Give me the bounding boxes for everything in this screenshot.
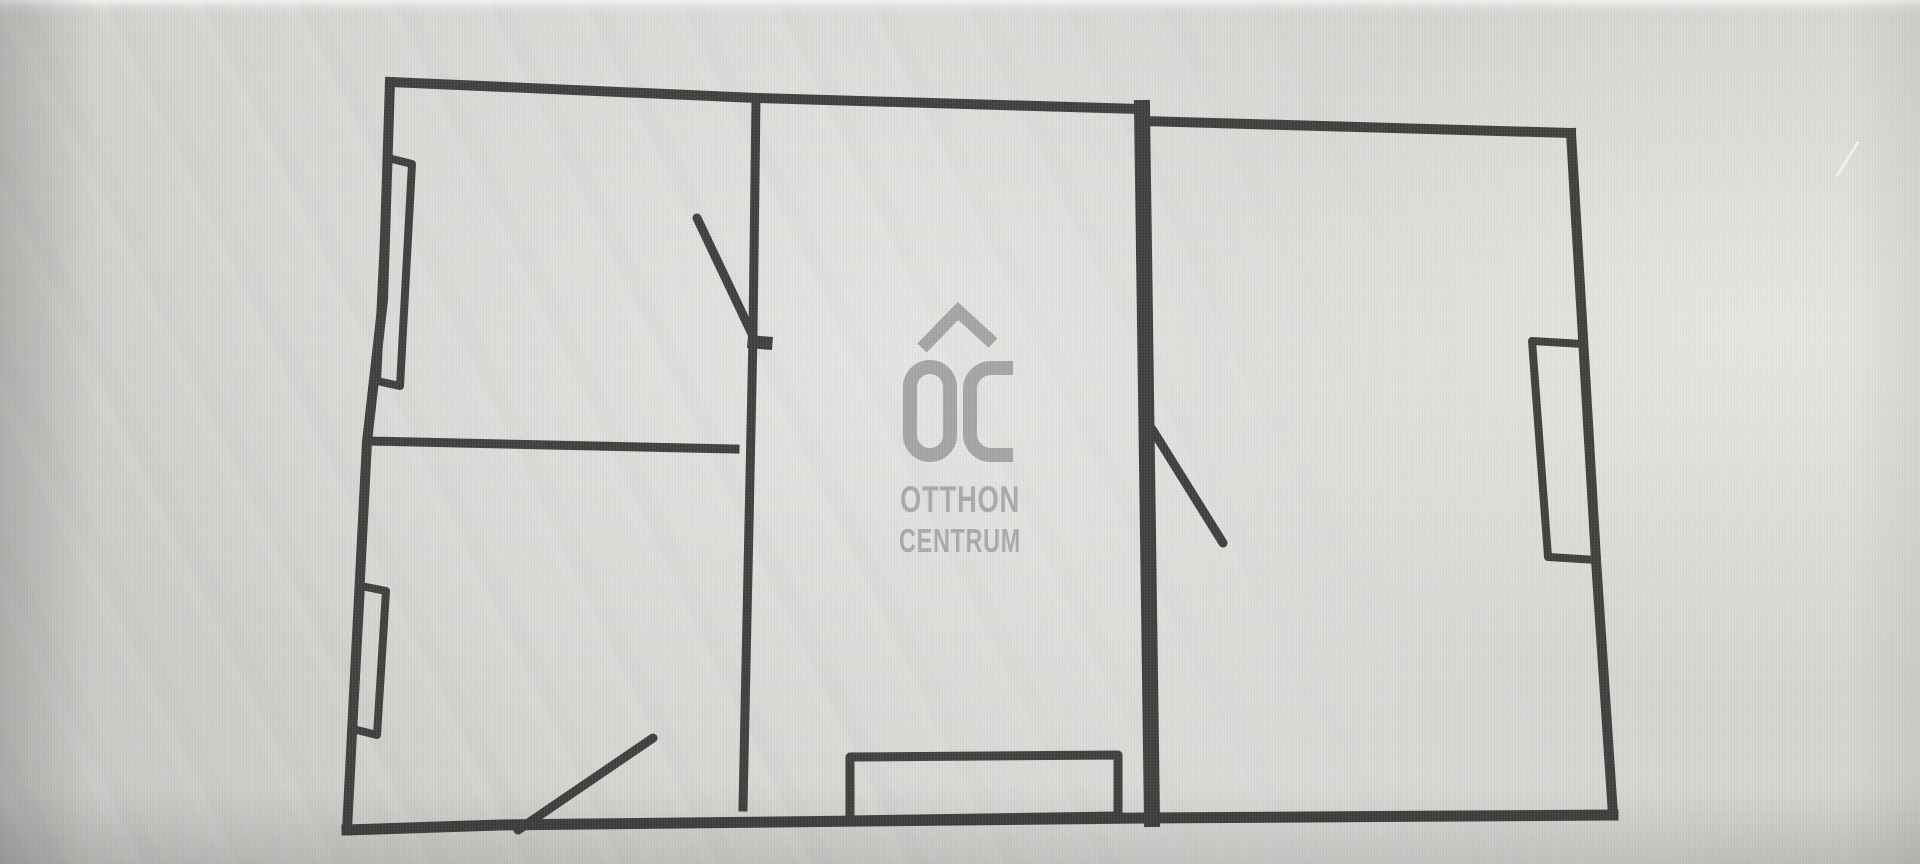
window-bottom-french-door (850, 755, 1118, 820)
oc-logo: OTTHON CENTRUM (899, 311, 1021, 559)
exterior-wall-top-left (390, 82, 1140, 109)
interior-wall-vertical-thin (743, 98, 756, 807)
interior-wall-horizontal-divider (367, 441, 735, 449)
roof-icon (922, 311, 993, 348)
logo-wordmark-line2: CENTRUM (899, 522, 1021, 559)
door-swing-right-room (1152, 429, 1223, 543)
logo-wordmark-line1: OTTHON (900, 479, 1020, 520)
interior-wall-vertical-thick (1142, 108, 1152, 819)
exterior-wall-top-right (1143, 121, 1571, 133)
door-swing-top-left-room (697, 218, 752, 334)
screen-photo: { "logo": { "monogram": "OC", "line1": "… (0, 0, 1920, 864)
window-right (1532, 341, 1597, 560)
door-hinge-nub (754, 342, 766, 343)
door-swing-bottom-left-room (518, 738, 653, 830)
floor-plan: OTTHON CENTRUM (0, 0, 1920, 864)
logo-letter-c (970, 368, 1013, 455)
logo-letter-o (910, 367, 950, 455)
